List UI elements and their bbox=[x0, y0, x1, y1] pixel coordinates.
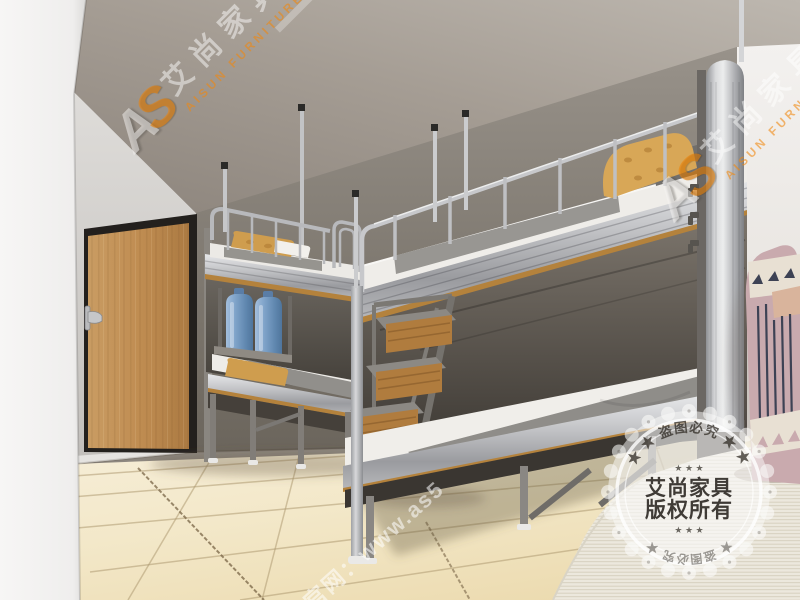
stamp-copyright: 版权所有 bbox=[645, 498, 733, 522]
ceiling-brace-pole bbox=[223, 168, 227, 232]
stamp-stars-top: ★ ★ ★ bbox=[674, 463, 703, 473]
stamp-brand: 艾尚家具 bbox=[645, 476, 733, 500]
copyright-stamp: ★ ★ 盗图必究 ★ ★ ★ ★ ★ 艾尚家具 版权所有 ★ ★ ★ ★ 盗图必… bbox=[600, 403, 778, 581]
foreground-wall bbox=[0, 0, 86, 600]
stamp-stars-bottom: ★ ★ ★ bbox=[674, 525, 703, 535]
wood-door bbox=[84, 214, 197, 453]
dorm-room-render: AS 艾尚家具 AISUN FURNITURE AS 艾尚家具 AISUN FU… bbox=[0, 0, 800, 600]
ceiling-brace-pole bbox=[464, 116, 468, 210]
ceiling-brace-pole bbox=[433, 130, 437, 222]
